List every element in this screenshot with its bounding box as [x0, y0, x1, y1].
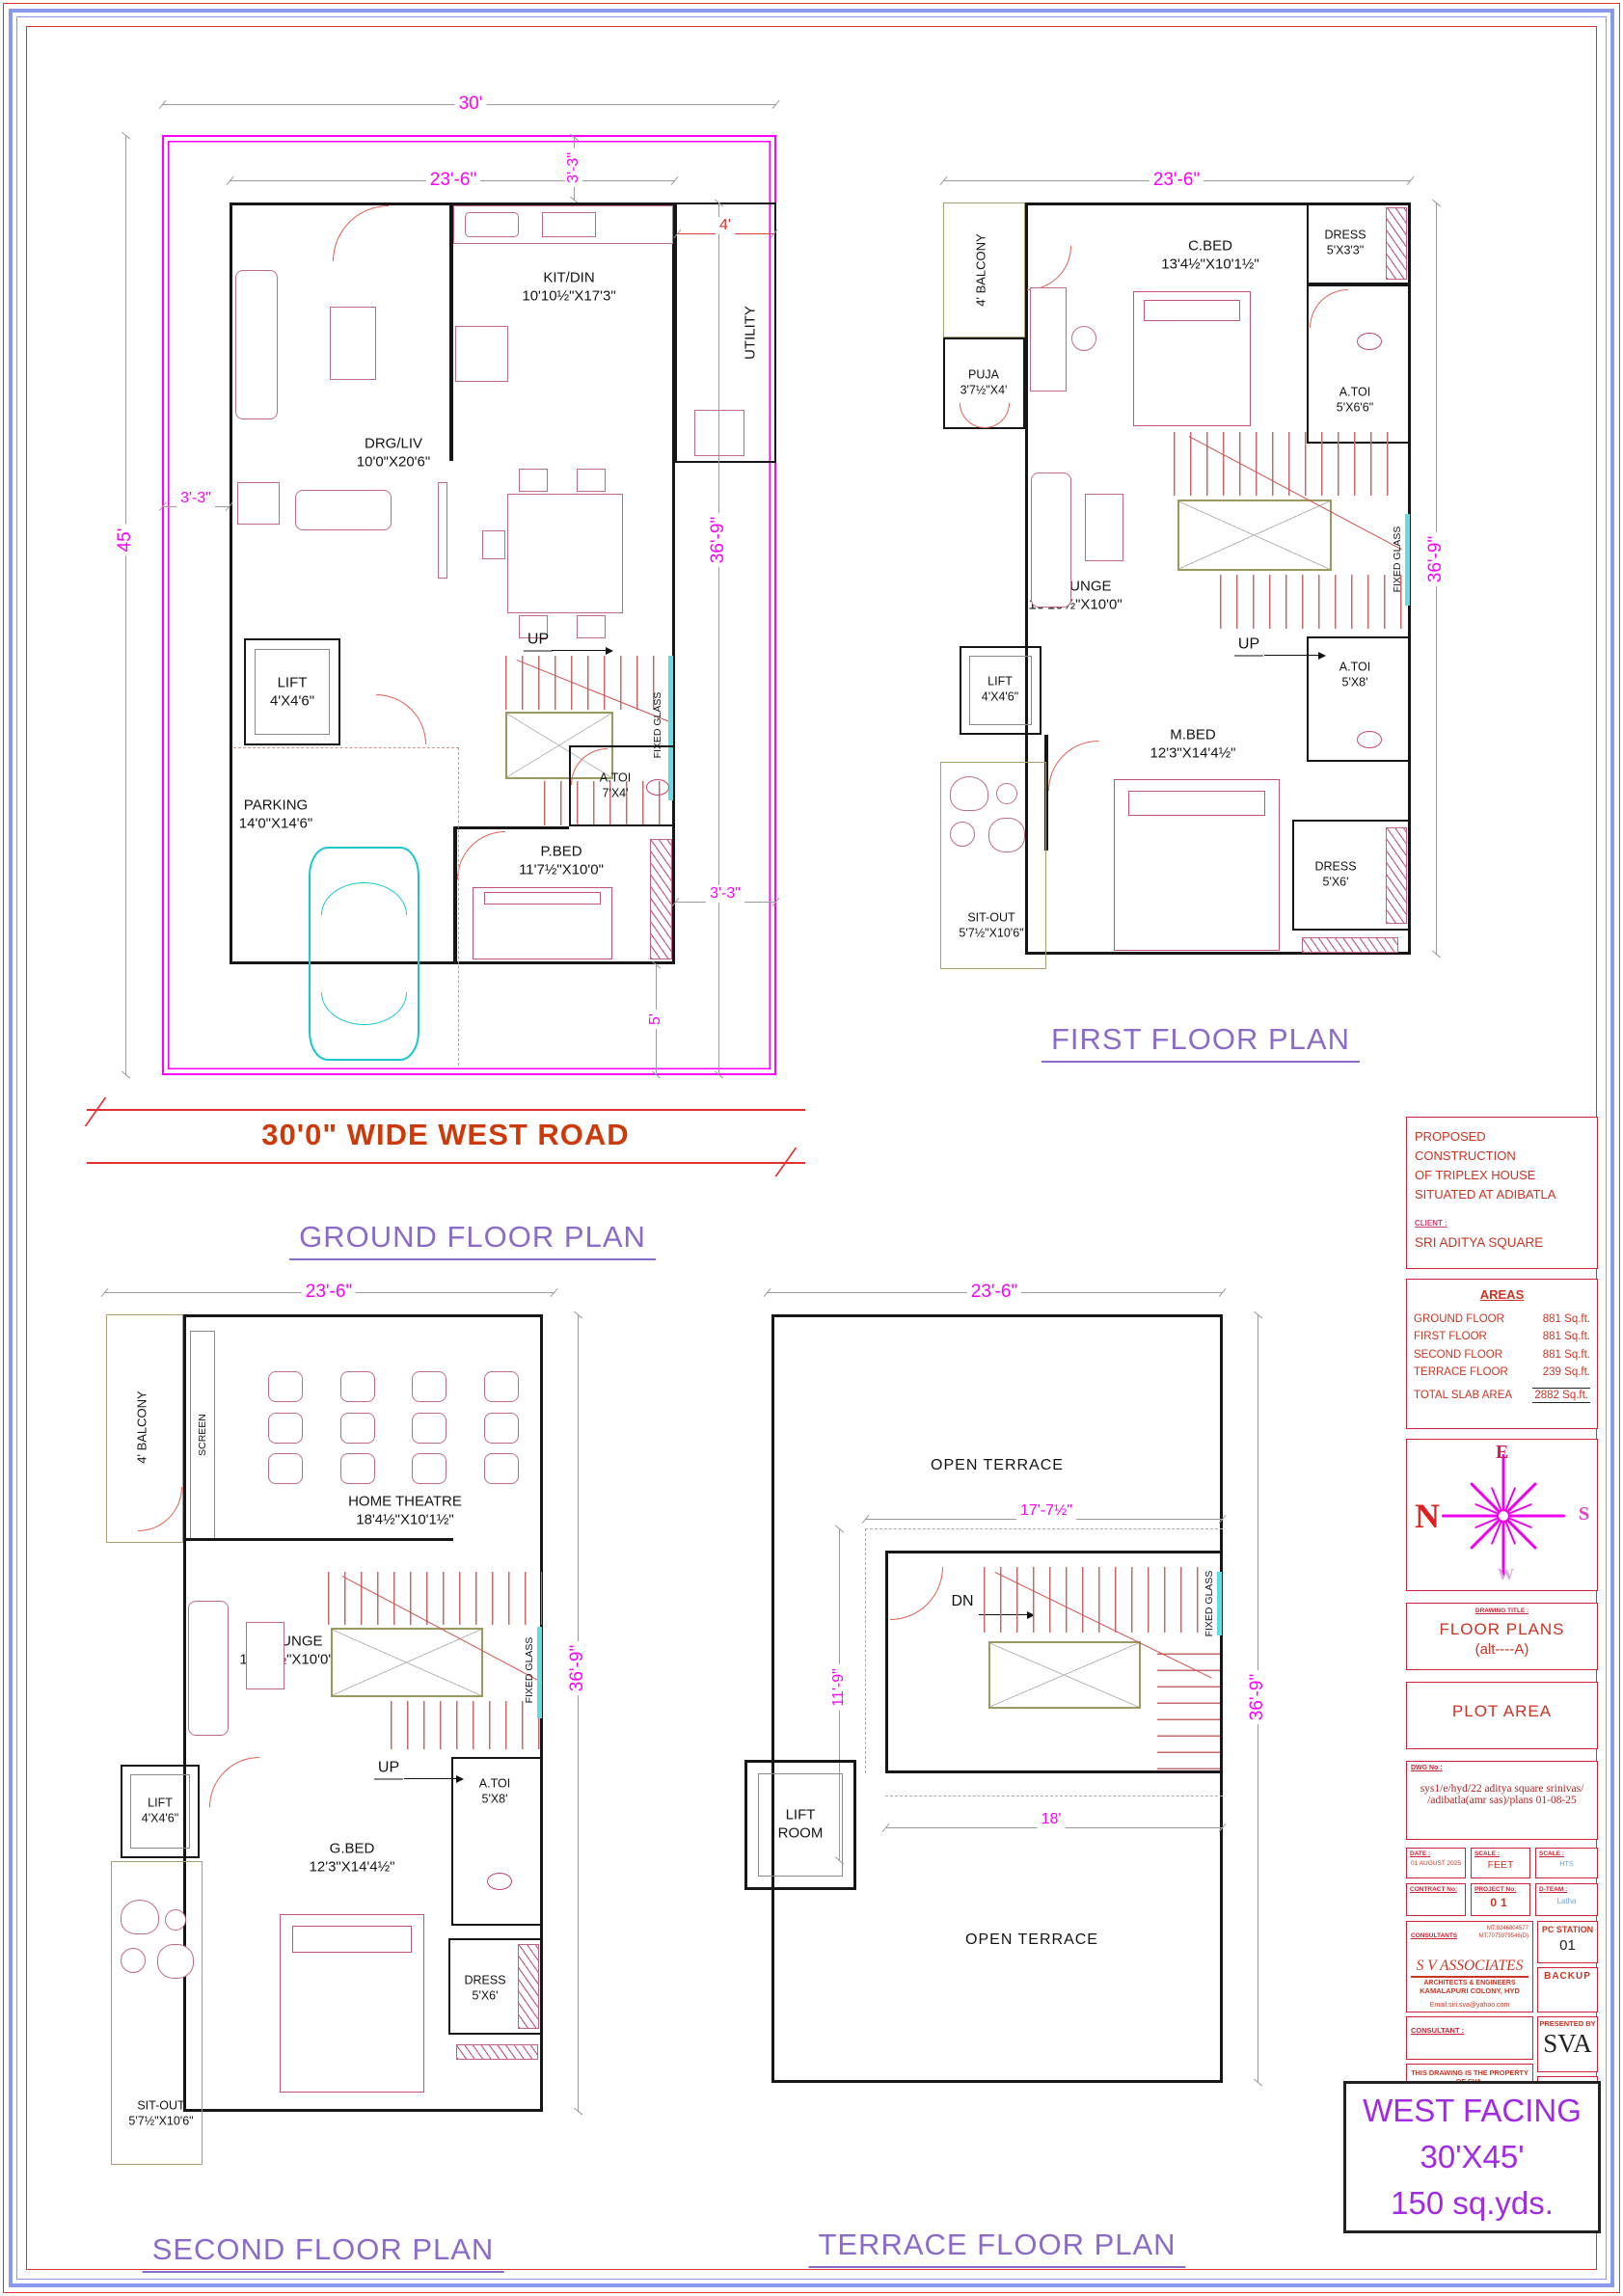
stairs-icon: [391, 1701, 542, 1749]
balcony-label: 4' BALCONY: [974, 233, 988, 306]
bed-icon: [1114, 779, 1280, 951]
fixed-glass-strip: [537, 1627, 542, 1718]
area-row-value: 239 Sq.ft.: [1543, 1364, 1590, 1381]
mbed-name: M.BED: [1150, 726, 1236, 744]
dress-size: 5'X6': [1314, 875, 1356, 890]
sofa-icon: [188, 1601, 229, 1736]
dim-line-45ft: [125, 135, 126, 1075]
project-no-value: 01: [1474, 1896, 1527, 1909]
areas-box: AREAS GROUND FLOOR 881 Sq.ft. FIRST FLOO…: [1406, 1279, 1598, 1429]
atoi-name: A.TOI: [479, 1776, 510, 1792]
scale-label: SCALE :: [1474, 1850, 1527, 1857]
dwg-no-box: DWG No : sys1/e/hyd/22 aditya square sri…: [1406, 1761, 1598, 1840]
fixed-glass-label: FIXED GLASS: [1392, 527, 1403, 593]
pc-station-label: PC STATION: [1538, 1925, 1597, 1934]
utility-label: UTILITY: [743, 306, 759, 360]
sink-icon: [465, 212, 519, 237]
compass-e: E: [1496, 1442, 1508, 1464]
dim-36-9: 36'-9": [567, 1641, 588, 1695]
pbed-wall-top: [453, 826, 569, 829]
stairs-icon: [328, 1572, 542, 1625]
sofa-icon: [1031, 473, 1071, 608]
area-row-label: FIRST FLOOR: [1414, 1328, 1487, 1345]
presented-by-label: PRESENTED BY: [1538, 2019, 1597, 2028]
area-row-label: SECOND FLOOR: [1414, 1346, 1502, 1364]
puja-label: PUJA 3'7½"X4': [960, 367, 1008, 397]
toilet-icon: [646, 779, 669, 796]
dim-36-9: 36'-9": [1247, 1670, 1268, 1724]
dim-23-6: 23'-6": [302, 1282, 356, 1303]
up-arrow-line: [552, 650, 608, 651]
lift-size: 4'X4'6": [982, 689, 1018, 705]
mbed-size: 12'3"X14'4½": [1150, 744, 1236, 763]
dining-table-icon: [507, 494, 623, 613]
drawing-title-box: DRAWING TITLE : FLOOR PLANS (alt----A): [1406, 1603, 1598, 1670]
gbed-size: 12'3"X14'4½": [310, 1858, 395, 1877]
chair-icon: [165, 1909, 186, 1931]
mbed-label: M.BED 12'3"X14'4½": [1150, 726, 1236, 763]
project-line: PROPOSED CONSTRUCTION: [1415, 1127, 1589, 1166]
drgliv-label: DRG/LIV 10'0"X20'6": [357, 435, 430, 472]
fridge-icon: [455, 326, 508, 382]
dn-label: DN: [947, 1593, 977, 1612]
stairs-icon: [505, 656, 673, 710]
fixed-glass-strip: [1217, 1572, 1222, 1635]
total-label: TOTAL SLAB AREA: [1414, 1390, 1512, 1401]
date-box: DATE : 01 AUGUST 2025: [1406, 1848, 1466, 1878]
atoi-size: 7'X4': [600, 786, 631, 801]
seat-icon: [412, 1371, 446, 1402]
up-arrow-head: [606, 647, 613, 655]
dteam-value: Latha: [1539, 1897, 1594, 1905]
stairs-icon: [1157, 1639, 1220, 1769]
dress-size: 5'X6': [464, 1988, 505, 2004]
seat-icon: [340, 1453, 375, 1484]
home-theatre-label: HOME THEATRE 18'4½"X10'1½": [348, 1493, 462, 1529]
pbed-size: 11'7½"X10'0": [519, 861, 604, 879]
west-facing-line3: 150 sq.yds.: [1346, 2180, 1598, 2227]
compass-s: S: [1579, 1503, 1589, 1526]
atoi-name: A.TOI: [1339, 660, 1370, 675]
dim-17-7: 17'-7½": [1016, 1502, 1076, 1520]
second-floor-plan: 23'-6" 4' BALCONY SCREEN HOME THEATRE 18…: [72, 1283, 699, 2296]
project-no-box: PROJECT No: 01: [1471, 1883, 1530, 1916]
gbed-name: G.BED: [310, 1840, 395, 1858]
dim-18: 18': [1038, 1811, 1066, 1828]
dress2-label: DRESS 5'X6': [1314, 859, 1356, 889]
plot-area-label: PLOT AREA: [1407, 1702, 1597, 1721]
pc-station-value: 01: [1538, 1937, 1597, 1954]
area-row-label: GROUND FLOOR: [1414, 1310, 1504, 1328]
area-row-value: 881 Sq.ft.: [1543, 1346, 1590, 1364]
toilet-icon: [1357, 333, 1382, 350]
road-break-icon: [84, 1097, 118, 1126]
home-theatre-name: HOME THEATRE: [348, 1493, 462, 1511]
date-value: 01 AUGUST 2025: [1410, 1860, 1462, 1867]
chair-icon: [996, 783, 1017, 804]
dwg-no-label: DWG No :: [1411, 1765, 1593, 1771]
consultants-label: CONSULTANTS: [1411, 1932, 1457, 1939]
dwg-no-line2: /adibatla(amr sas)/plans 01-08-25: [1411, 1795, 1593, 1806]
seat-icon: [268, 1453, 303, 1484]
dim-5ft: 5': [647, 1010, 664, 1029]
sitout-size: 5'7½"X10'6": [128, 2114, 193, 2129]
bed-icon: [1133, 291, 1251, 426]
backup-box: BACKUP: [1537, 1967, 1598, 2012]
atoi-label: A.TOI 5'X6'6": [1337, 385, 1373, 415]
chair-icon: [157, 1944, 194, 1979]
chair-icon: [519, 469, 548, 492]
dim-23-6: 23'-6": [967, 1282, 1021, 1303]
road-line-1: [87, 1109, 805, 1111]
wardrobe-hatch: [456, 2044, 538, 2060]
drawing-title-1: FLOOR PLANS: [1407, 1620, 1597, 1639]
title-block: PROPOSED CONSTRUCTION OF TRIPLEX HOUSE S…: [1403, 1109, 1601, 2112]
lift-name: LIFT: [270, 674, 314, 692]
stairs-icon: [1174, 432, 1403, 496]
sitout-size: 5'7½"X10'6": [959, 926, 1023, 941]
atoi-size: 5'X8': [479, 1792, 510, 1807]
desk-icon: [1030, 287, 1067, 392]
dress-name: DRESS: [1314, 859, 1356, 875]
total-value: 2882 Sq.ft.: [1532, 1388, 1590, 1403]
backup-label: BACKUP: [1538, 1971, 1597, 1982]
open-terrace-top-label: OPEN TERRACE: [931, 1457, 1064, 1474]
lift-room-label: LIFT ROOM: [762, 1806, 839, 1843]
presented-by-value: SVA: [1538, 2029, 1597, 2059]
dim-36-9: 36'-9": [1425, 532, 1447, 586]
dim-23-6: 23'-6": [1150, 170, 1204, 191]
dim-3-3-left: 3'-3": [176, 490, 215, 507]
up-label: UP: [374, 1760, 403, 1780]
parking-name: PARKING: [239, 797, 312, 815]
firm-sub1: ARCHITECTS & ENGINEERS: [1411, 1980, 1528, 1986]
drawing-sheet: 30' 45' 23'-6" 3'-3" UTILITY 4' KIT/DIN …: [0, 0, 1623, 2296]
up-arrow-line: [404, 1778, 458, 1779]
toilet-icon: [487, 1873, 512, 1890]
stair-landing: [1177, 500, 1332, 571]
scale2-value: HTS: [1539, 1861, 1594, 1868]
dim-line-36-9: [718, 203, 719, 1075]
atoi-name: A.TOI: [1337, 385, 1373, 400]
terrace-floor-title: TERRACE FLOOR PLAN: [808, 2228, 1185, 2268]
consultants-phone2: MT:7075979546(D): [1479, 1933, 1528, 1939]
first-floor-plan: 23'-6" 4' BALCONY PUJA 3'7½"X4' C.BED 13…: [931, 154, 1475, 1070]
tv-unit-icon: [438, 482, 447, 579]
dim-36-9: 36'-9": [708, 513, 729, 567]
consultants-box: CONSULTANTS MT:9246804577 MT:7075979546(…: [1406, 1921, 1533, 2012]
art-frame-icon: [330, 307, 376, 380]
table-icon: [246, 1622, 284, 1689]
area-row-value: 881 Sq.ft.: [1543, 1310, 1590, 1328]
lift-label: LIFT 4'X4'6": [270, 674, 314, 711]
dwg-no-line1: sys1/e/hyd/22 aditya square srinivas/: [1411, 1783, 1593, 1795]
pbed-name: P.BED: [519, 843, 604, 861]
seat-icon: [268, 1371, 303, 1402]
sitout-name: SIT-OUT: [959, 910, 1023, 926]
sitout-name: SIT-OUT: [128, 2098, 193, 2114]
areas-heading: AREAS: [1414, 1287, 1590, 1302]
compass-rose-icon: [1436, 1457, 1571, 1575]
fixed-glass-label: FIXED GLASS: [1204, 1571, 1215, 1637]
stairs-icon: [1220, 575, 1403, 629]
dteam-label: D-TEAM :: [1539, 1886, 1594, 1893]
chair-icon: [482, 530, 505, 559]
road-line-2: [87, 1162, 805, 1164]
dteam-box: D-TEAM : Latha: [1535, 1883, 1598, 1916]
west-facing-line1: WEST FACING: [1346, 2088, 1598, 2134]
drawing-title-2: (alt----A): [1407, 1641, 1597, 1658]
desk-chair-icon: [1071, 326, 1096, 351]
plot-area-box: PLOT AREA: [1406, 1682, 1598, 1749]
project-line: SITUATED AT ADIBATLA: [1415, 1185, 1589, 1204]
contract-box: CONTRACT No:: [1406, 1883, 1466, 1916]
wardrobe-hatch: [650, 839, 672, 959]
compass-box: E N S W: [1406, 1439, 1598, 1591]
pbed-label: P.BED 11'7½"X10'0": [519, 843, 604, 879]
dim-23-6: 23'-6": [426, 170, 480, 191]
cbed-label: C.BED 13'4½"X10'1½": [1161, 237, 1258, 274]
compass-w: W: [1498, 1565, 1514, 1584]
lift-name: LIFT: [982, 674, 1018, 689]
chair-icon: [950, 822, 975, 847]
gbed-label: G.BED 12'3"X14'4½": [310, 1840, 395, 1877]
first-floor-title: FIRST FLOOR PLAN: [1041, 1022, 1360, 1063]
contract-label: CONTRACT No:: [1410, 1886, 1462, 1893]
dim-11-9: 11'-9": [830, 1664, 848, 1711]
sitout-label: SIT-OUT 5'7½"X10'6": [128, 2098, 193, 2128]
car-icon: [309, 847, 419, 1061]
consultant-label: CONSULTANT :: [1411, 2026, 1464, 2035]
chair-icon: [988, 818, 1025, 852]
cbed-name: C.BED: [1161, 237, 1258, 256]
stove-icon: [542, 212, 596, 237]
toilet-icon: [1357, 731, 1382, 748]
parking-size: 14'0"X14'6": [239, 815, 312, 833]
sofa-icon: [235, 270, 278, 419]
dim-45ft: 45': [115, 525, 136, 556]
project-line: OF TRIPLEX HOUSE: [1415, 1166, 1589, 1185]
chair-icon: [121, 1948, 146, 1973]
dim-3-3-br: 3'-3": [706, 885, 744, 903]
wardrobe-hatch: [1386, 827, 1407, 924]
chair-icon: [577, 469, 606, 492]
dim-3-3-top: 3'-3": [565, 149, 582, 187]
puja-size: 3'7½"X4': [960, 383, 1008, 398]
atoi-size: 5'X8': [1339, 675, 1370, 690]
dress-name: DRESS: [1324, 228, 1366, 243]
project-info-box: PROPOSED CONSTRUCTION OF TRIPLEX HOUSE S…: [1406, 1117, 1598, 1269]
chair-icon: [950, 776, 988, 811]
fixed-glass-label: FIXED GLASS: [524, 1637, 535, 1704]
dim-4ft: 4': [716, 217, 735, 234]
kitdin-label: KIT/DIN 10'10½"X17'3": [522, 269, 615, 306]
scale2-label: SCALE :: [1539, 1850, 1594, 1857]
sitout-label: SIT-OUT 5'7½"X10'6": [959, 910, 1023, 940]
area-row-label: TERRACE FLOOR: [1414, 1364, 1508, 1381]
dress-name: DRESS: [464, 1973, 505, 1988]
setback-dashed-v: [865, 1528, 866, 1773]
kitdin-name: KIT/DIN: [522, 269, 615, 287]
seat-icon: [412, 1413, 446, 1444]
dress-size: 5'X3'3": [1324, 243, 1366, 258]
scale-box: SCALE : FEET: [1471, 1848, 1530, 1878]
seat-icon: [484, 1371, 519, 1402]
open-terrace-bottom-label: OPEN TERRACE: [965, 1931, 1098, 1949]
client-name: SRI ADITYA SQUARE: [1415, 1235, 1589, 1250]
atoi2-label: A.TOI 5'X8': [1339, 660, 1370, 689]
lift-label: LIFT 4'X4'6": [982, 674, 1018, 704]
atoi-label: A.TOI 5'X8': [479, 1776, 510, 1806]
west-facing-line2: 30'X45': [1346, 2134, 1598, 2180]
firm-name: S V ASSOCIATES: [1411, 1958, 1528, 1978]
ground-floor-plan: 30' 45' 23'-6" 3'-3" UTILITY 4' KIT/DIN …: [87, 77, 829, 1287]
screen-label: SCREEN: [197, 1414, 208, 1456]
scale2-box: SCALE : HTS: [1535, 1848, 1598, 1878]
parking-label: PARKING 14'0"X14'6": [239, 797, 312, 833]
table-icon: [1085, 494, 1123, 561]
drgliv-size: 10'0"X20'6": [357, 453, 430, 472]
lift-size: 4'X4'6": [142, 1811, 178, 1826]
firm-email: Email:siri.sva@yahoo.com: [1411, 2002, 1528, 2009]
ground-floor-title: GROUND FLOOR PLAN: [289, 1220, 656, 1260]
seat-icon: [340, 1371, 375, 1402]
side-table-icon: [237, 482, 280, 525]
consultants-phone1: MT:9246804577: [1487, 1926, 1528, 1931]
west-facing-box: WEST FACING 30'X45' 150 sq.yds.: [1343, 2081, 1601, 2233]
date-label: DATE :: [1410, 1850, 1462, 1857]
seat-icon: [484, 1413, 519, 1444]
home-theatre-size: 18'4½"X10'1½": [348, 1511, 462, 1529]
setback-dashed-h: [865, 1528, 1223, 1529]
puja-name: PUJA: [960, 367, 1008, 383]
bed-icon: [473, 887, 612, 959]
dim-line-36-9: [578, 1314, 579, 2112]
up-label: UP: [524, 632, 553, 652]
client-label: CLIENT :: [1415, 1219, 1589, 1228]
firm-sub2: KAMALAPURI COLONY, HYD: [1411, 1986, 1528, 1995]
balcony-label: 4' BALCONY: [135, 1391, 149, 1463]
drgliv-name: DRG/LIV: [357, 435, 430, 453]
compass-n: N: [1415, 1496, 1440, 1536]
lift-size: 4'X4'6": [270, 692, 314, 711]
dim-30ft: 30': [455, 94, 487, 115]
kitdin-size: 10'10½"X17'3": [522, 287, 615, 306]
wardrobe-hatch: [1386, 207, 1407, 280]
lift-name: LIFT: [142, 1796, 178, 1811]
seat-icon: [412, 1453, 446, 1484]
chair-icon: [121, 1900, 159, 1934]
chair-icon: [577, 615, 606, 638]
seat-icon: [340, 1413, 375, 1444]
presented-by-box: PRESENTED BY SVA: [1537, 2016, 1598, 2072]
pc-station-box: PC STATION 01: [1537, 1921, 1598, 1963]
drawing-title-label: DRAWING TITLE :: [1407, 1607, 1597, 1614]
atoi-size: 5'X6'6": [1337, 400, 1373, 416]
seat-icon: [268, 1413, 303, 1444]
scale-value: FEET: [1474, 1859, 1527, 1871]
seat-icon: [484, 1453, 519, 1484]
road-label: 30'0" WIDE WEST ROAD: [261, 1118, 629, 1152]
project-no-label: PROJECT No:: [1474, 1886, 1527, 1893]
up-label: UP: [1234, 636, 1263, 657]
sofa2-icon: [295, 490, 392, 530]
fixed-glass-strip: [1405, 514, 1410, 606]
theatre-bottom-wall: [183, 1538, 453, 1541]
theatre-seats-icon: [268, 1371, 527, 1485]
dress-label: DRESS 5'X6': [464, 1973, 505, 2003]
terrace-floor-plan: 23'-6" OPEN TERRACE 17'-7½" 11'-9" DN FI…: [743, 1283, 1340, 2296]
wardrobe-hatch: [1302, 937, 1398, 953]
stair-landing: [988, 1641, 1141, 1709]
consultant-box: CONSULTANT :: [1406, 2016, 1533, 2060]
bed-icon: [280, 1914, 424, 2093]
lift-label: LIFT 4'X4'6": [142, 1796, 178, 1825]
terrace-dashed-h2: [885, 1796, 1223, 1796]
cbed-size: 13'4½"X10'1½": [1161, 256, 1258, 274]
area-row-value: 881 Sq.ft.: [1543, 1328, 1590, 1345]
dress-label: DRESS 5'X3'3": [1324, 228, 1366, 257]
second-floor-title: SECOND FLOOR PLAN: [143, 2232, 504, 2273]
wardrobe-hatch: [518, 1944, 539, 2029]
